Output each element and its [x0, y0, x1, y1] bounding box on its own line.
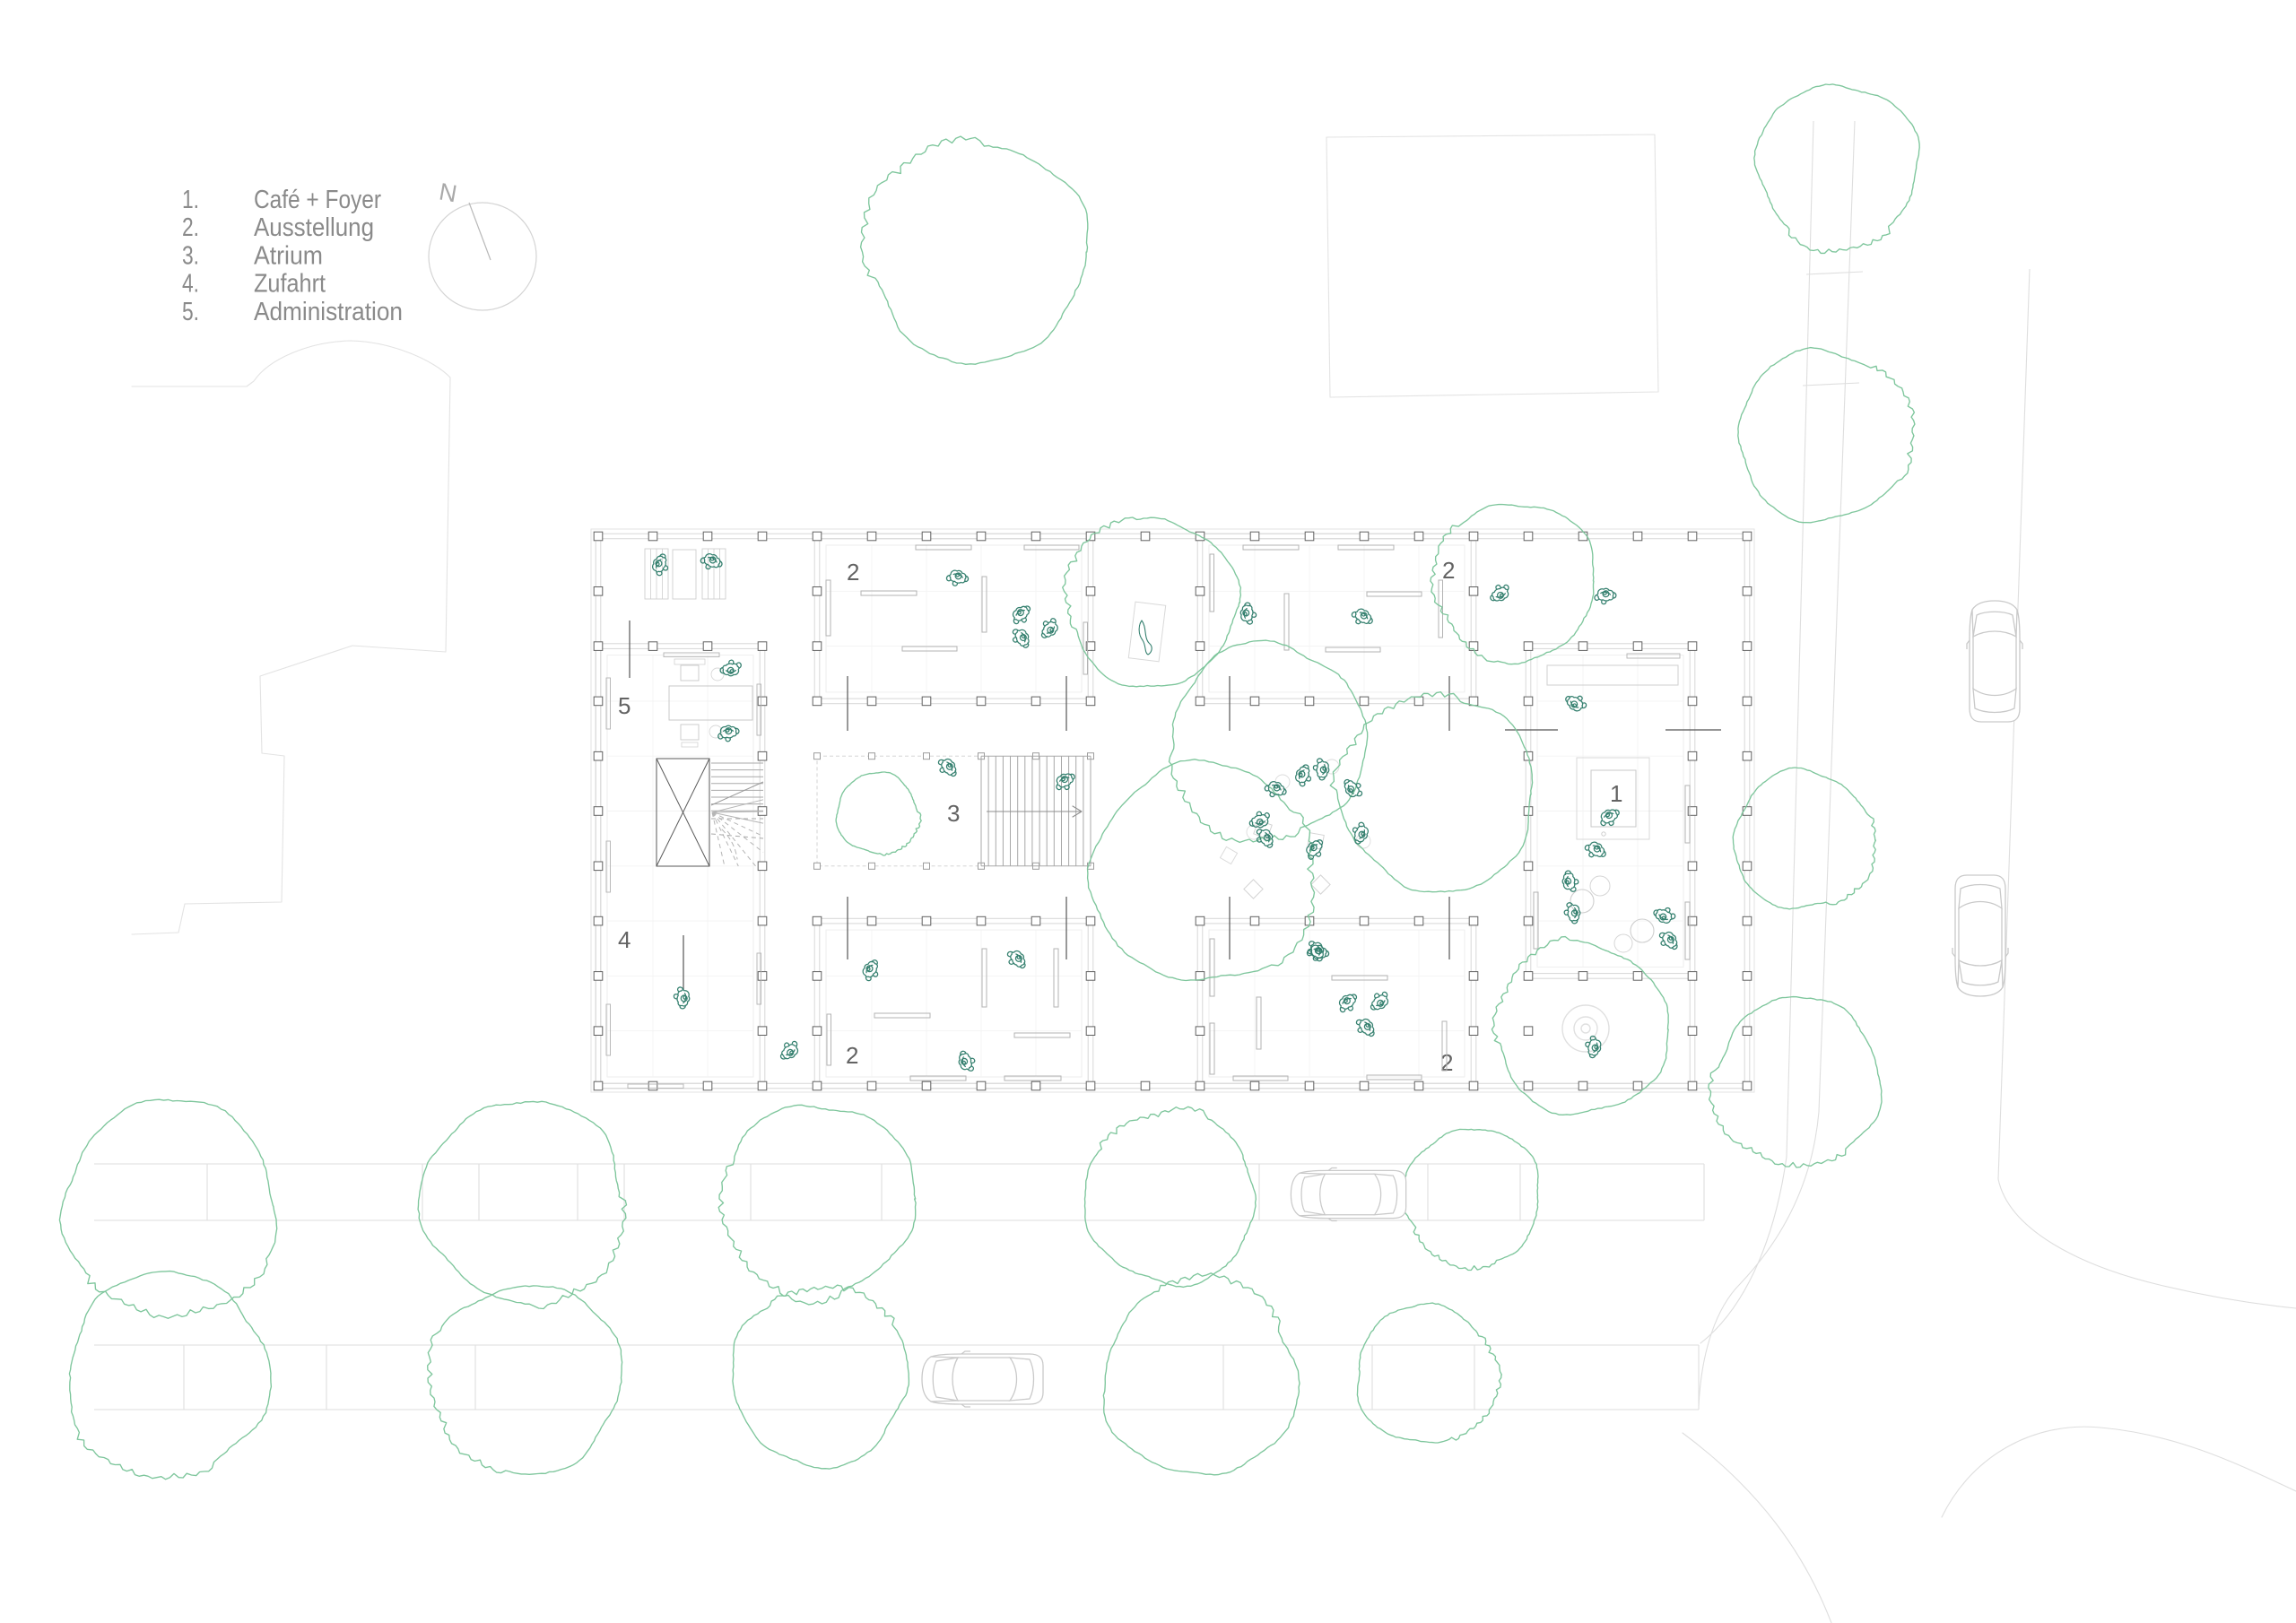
svg-text:Ausstellung: Ausstellung: [254, 213, 374, 242]
svg-text:Zufahrt: Zufahrt: [254, 270, 326, 299]
svg-text:2: 2: [1442, 557, 1455, 584]
svg-text:2.: 2.: [182, 213, 199, 242]
svg-text:2: 2: [847, 559, 859, 586]
svg-text:5: 5: [618, 692, 631, 719]
svg-text:3.: 3.: [182, 241, 199, 270]
svg-text:Café + Foyer: Café + Foyer: [254, 186, 381, 214]
svg-text:4: 4: [618, 926, 631, 953]
svg-text:3: 3: [947, 800, 960, 827]
svg-text:Atrium: Atrium: [254, 241, 323, 270]
svg-text:2: 2: [846, 1042, 858, 1069]
svg-text:Administration: Administration: [254, 298, 403, 326]
svg-text:5.: 5.: [182, 298, 199, 326]
svg-text:4.: 4.: [182, 270, 199, 299]
svg-text:1: 1: [1610, 780, 1622, 807]
svg-text:1.: 1.: [182, 186, 199, 214]
